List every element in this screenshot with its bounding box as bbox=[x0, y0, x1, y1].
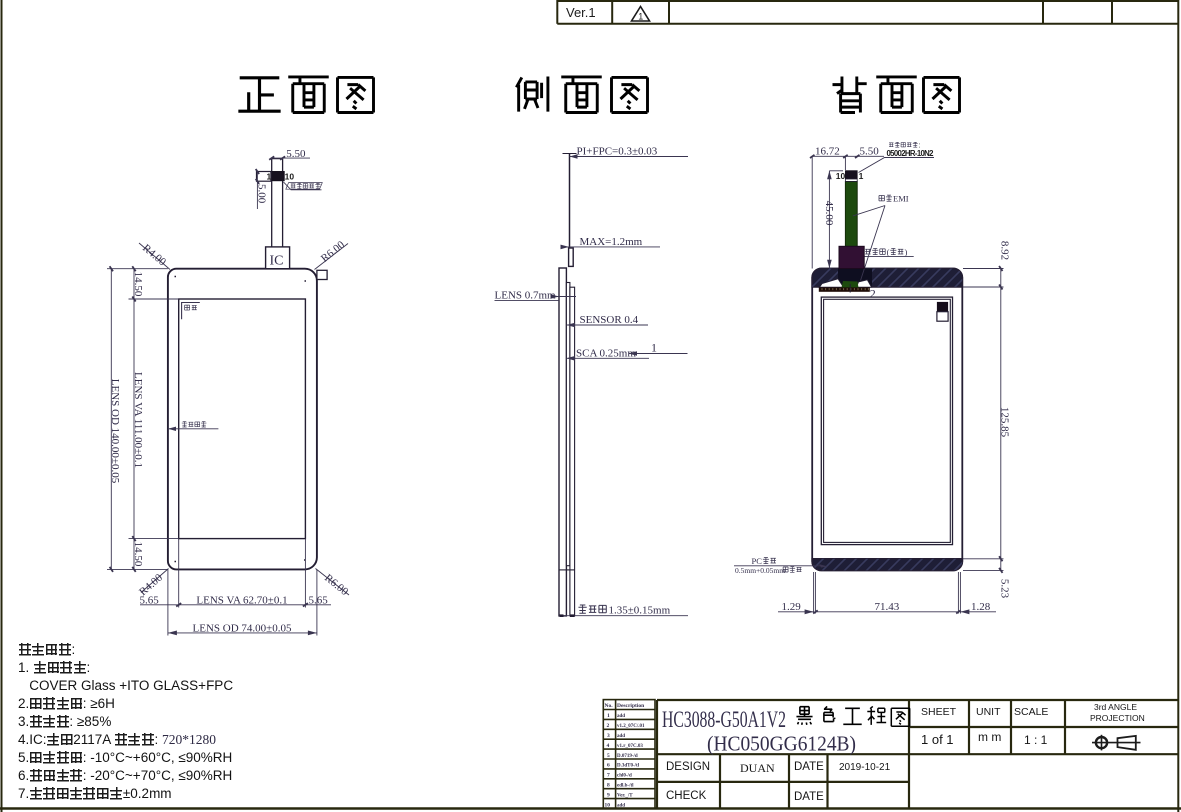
svg-text:16.72: 16.72 bbox=[815, 145, 840, 157]
svg-text:SCA 0.25mm: SCA 0.25mm bbox=[576, 347, 636, 359]
svg-text:edl.b-/tl: edl.b-/tl bbox=[617, 784, 634, 789]
svg-text:2: 2 bbox=[870, 287, 876, 301]
svg-text:4: 4 bbox=[607, 743, 610, 749]
svg-text:v1.r_07C.03: v1.r_07C.03 bbox=[617, 744, 643, 749]
svg-text:v1.2_07C/.01: v1.2_07C/.01 bbox=[617, 724, 645, 729]
svg-text:5.50: 5.50 bbox=[860, 145, 880, 157]
svg-text:45.00: 45.00 bbox=[823, 201, 835, 226]
svg-text:add: add bbox=[617, 734, 625, 739]
svg-text:05002HR-10N2: 05002HR-10N2 bbox=[887, 149, 935, 158]
svg-text:1.28: 1.28 bbox=[971, 601, 991, 613]
svg-text:14.50: 14.50 bbox=[132, 542, 144, 567]
svg-text:5.50: 5.50 bbox=[286, 148, 306, 160]
svg-text:5.65: 5.65 bbox=[140, 594, 160, 606]
svg-text:No.: No. bbox=[605, 703, 614, 709]
svg-text:1.29: 1.29 bbox=[782, 601, 802, 613]
svg-text:SENSOR 0.4: SENSOR 0.4 bbox=[580, 314, 639, 326]
svg-text:10: 10 bbox=[605, 803, 611, 809]
svg-text:6: 6 bbox=[607, 763, 610, 769]
svg-text:1.35±0.15mm: 1.35±0.15mm bbox=[609, 605, 671, 617]
svg-text:1: 1 bbox=[607, 713, 610, 719]
svg-text:): ) bbox=[905, 247, 908, 257]
svg-text:8: 8 bbox=[607, 783, 610, 789]
svg-text:1: 1 bbox=[267, 172, 272, 182]
svg-text:LENS OD 74.00±0.05: LENS OD 74.00±0.05 bbox=[193, 623, 292, 635]
svg-text:10: 10 bbox=[836, 171, 846, 181]
svg-text:Ver._/T: Ver._/T bbox=[617, 794, 633, 799]
svg-text:(HC050GG6124B): (HC050GG6124B) bbox=[707, 732, 856, 756]
svg-text:EMI: EMI bbox=[893, 193, 909, 203]
svg-text:IC: IC bbox=[270, 254, 284, 269]
svg-text:1: 1 bbox=[651, 341, 657, 355]
svg-text:HC3088-G50A1V2: HC3088-G50A1V2 bbox=[662, 707, 786, 732]
svg-text:add: add bbox=[617, 714, 625, 719]
svg-text:MAX=1.2mm: MAX=1.2mm bbox=[580, 236, 643, 248]
svg-text:LENS OD 140.00±0.05: LENS OD 140.00±0.05 bbox=[109, 379, 121, 484]
svg-text:3: 3 bbox=[607, 733, 610, 739]
svg-text:7: 7 bbox=[607, 773, 610, 779]
svg-text:PC: PC bbox=[752, 556, 763, 566]
svg-text:2: 2 bbox=[607, 723, 610, 729]
svg-text:5.65: 5.65 bbox=[309, 594, 329, 606]
svg-text:LENS VA 62.70±0.1: LENS VA 62.70±0.1 bbox=[196, 594, 287, 606]
svg-text:R6.00: R6.00 bbox=[319, 238, 348, 264]
svg-text:0.5mm+0.05mm: 0.5mm+0.05mm bbox=[735, 566, 785, 575]
svg-text:1: 1 bbox=[638, 12, 643, 22]
svg-text:5: 5 bbox=[607, 753, 610, 759]
svg-text:71.43: 71.43 bbox=[875, 601, 900, 613]
svg-text:10: 10 bbox=[285, 172, 295, 182]
svg-text:D.0719-/d: D.0719-/d bbox=[617, 754, 638, 759]
svg-text:5.23: 5.23 bbox=[999, 579, 1011, 599]
svg-text:D.3dT0-/tl: D.3dT0-/tl bbox=[617, 764, 640, 769]
svg-text:LENS 0.7mm: LENS 0.7mm bbox=[495, 290, 557, 302]
svg-text:LENS VA 111.00±0.1: LENS VA 111.00±0.1 bbox=[132, 372, 144, 468]
svg-text:9: 9 bbox=[607, 793, 610, 799]
svg-text:Description: Description bbox=[617, 703, 644, 709]
svg-text:8.92: 8.92 bbox=[999, 241, 1011, 260]
svg-text:5.00: 5.00 bbox=[255, 184, 267, 204]
svg-text:14.50: 14.50 bbox=[132, 272, 144, 297]
svg-text:PI+FPC=0.3±0.03: PI+FPC=0.3±0.03 bbox=[577, 146, 658, 158]
svg-text:125.85: 125.85 bbox=[999, 407, 1011, 438]
svg-text:(: ( bbox=[887, 247, 890, 257]
svg-text:chl0-/d: chl0-/d bbox=[617, 774, 632, 779]
svg-text:add: add bbox=[617, 804, 625, 809]
